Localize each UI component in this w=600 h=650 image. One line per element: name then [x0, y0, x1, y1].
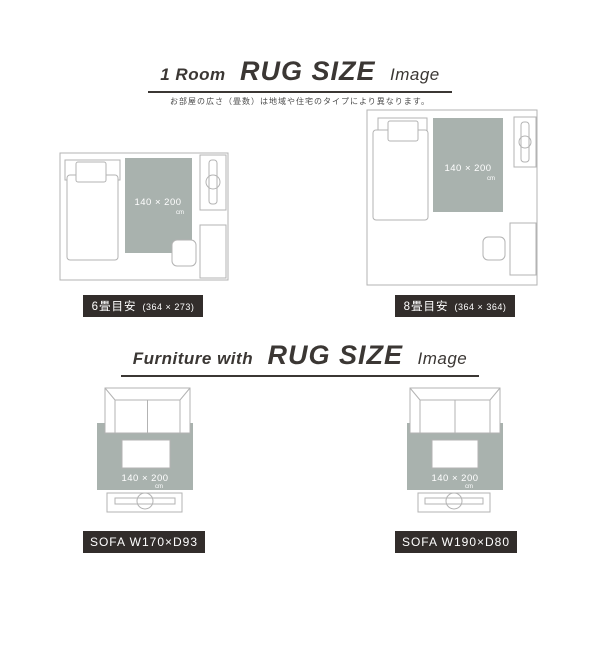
sofa-diagram-w190: 140 × 200 cm — [405, 386, 507, 514]
room-size-badge-6-tatami: 6畳目安(364 × 273) — [83, 295, 203, 317]
wardrobe-icon — [200, 155, 226, 210]
wardrobe-icon — [514, 117, 536, 167]
section-2-title-prefix: Furniture with — [133, 349, 253, 368]
rug-unit-label: cm — [487, 176, 495, 182]
rug-unit-label: cm — [155, 484, 163, 490]
section-2-header: Furniture with RUG SIZE Image — [0, 340, 600, 377]
desk — [510, 223, 536, 275]
sofa-diagram-w170: 140 × 200 cm — [95, 386, 197, 514]
bed-body — [373, 130, 428, 220]
page: 1 Room RUG SIZE Image お部屋の広さ（畳数）は地域や住宅のタ… — [0, 0, 600, 650]
badge-dims: (364 × 273) — [143, 302, 195, 312]
badge-label: SOFA W190×D80 — [402, 535, 510, 549]
bed-body — [67, 175, 118, 260]
section-1-title-suffix: Image — [390, 65, 440, 84]
section-1-title-prefix: 1 Room — [160, 65, 225, 84]
rug-size-label: 140 × 200 — [431, 473, 478, 484]
section-1-title-main: RUG SIZE — [240, 56, 376, 86]
room-size-badge-8-tatami: 8畳目安(364 × 364) — [395, 295, 515, 317]
bed-pillow — [388, 121, 418, 141]
chair — [483, 237, 505, 260]
rug-size-label: 140 × 200 — [134, 197, 181, 208]
rug-unit-label: cm — [465, 484, 473, 490]
sofa-size-badge-w190: SOFA W190×D80 — [395, 531, 517, 553]
coffee-table — [122, 440, 170, 468]
bed-pillow — [76, 162, 106, 182]
rug-unit-label: cm — [176, 210, 184, 216]
badge-dims: (364 × 364) — [455, 302, 507, 312]
section-2-title-main: RUG SIZE — [268, 340, 404, 370]
section-1-header: 1 Room RUG SIZE Image お部屋の広さ（畳数）は地域や住宅のタ… — [0, 56, 600, 107]
badge-label: 8畳目安 — [404, 301, 449, 313]
chair — [172, 240, 196, 266]
section-2-title-suffix: Image — [418, 349, 468, 368]
badge-label: 6畳目安 — [92, 301, 137, 313]
room-diagram-6-tatami: 140 × 200 cm — [56, 150, 230, 283]
rug-size-label: 140 × 200 — [444, 163, 491, 174]
coffee-table — [432, 440, 478, 468]
badge-label: SOFA W170×D93 — [90, 535, 198, 549]
desk — [200, 225, 226, 278]
section-2-title: Furniture with RUG SIZE Image — [121, 340, 480, 377]
section-1-title: 1 Room RUG SIZE Image — [148, 56, 452, 93]
rug-size-label: 140 × 200 — [121, 473, 168, 484]
section-1-subtitle: お部屋の広さ（畳数）は地域や住宅のタイプにより異なります。 — [0, 96, 600, 107]
sofa-size-badge-w170: SOFA W170×D93 — [83, 531, 205, 553]
room-diagram-8-tatami: 140 × 200 cm — [364, 108, 539, 287]
